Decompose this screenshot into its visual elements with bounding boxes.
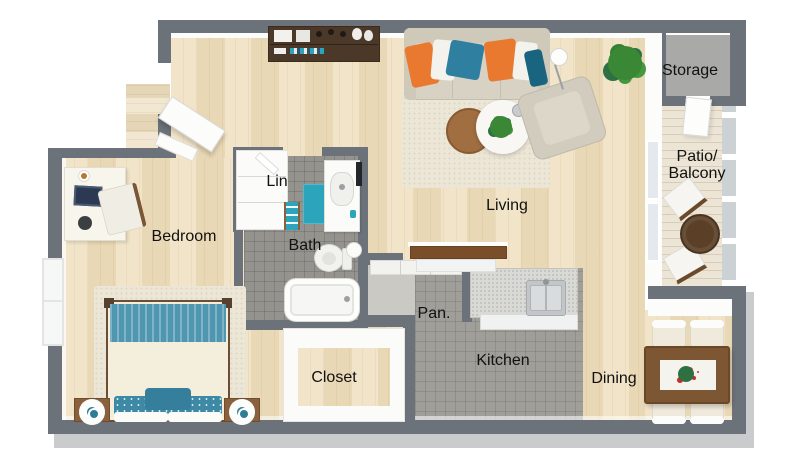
bed-foot-runner bbox=[110, 304, 226, 342]
bed-pillow-white-left bbox=[114, 412, 168, 422]
console-books-2 bbox=[296, 30, 310, 42]
console-decor-knob-2 bbox=[328, 29, 334, 35]
dining-top-inner-face bbox=[648, 299, 732, 316]
label-bath: Bath bbox=[275, 237, 335, 254]
bar-counter-top bbox=[410, 246, 507, 259]
bath-pedestal bbox=[346, 242, 362, 258]
console-media-items-2 bbox=[274, 48, 286, 54]
dining-chair-top-left-back bbox=[652, 320, 686, 328]
bedroom-top-wall bbox=[48, 148, 176, 158]
dining-chair-bottom-left-back bbox=[652, 416, 686, 424]
sofa-back bbox=[404, 28, 550, 43]
right-wall-base bbox=[746, 292, 754, 434]
desk-stool bbox=[78, 216, 92, 230]
dining-chair-top-right-back bbox=[690, 320, 724, 328]
patio-slider-glass-lower bbox=[646, 202, 660, 262]
label-pantry: Pan. bbox=[404, 305, 464, 322]
label-dining: Dining bbox=[574, 370, 654, 387]
bottom-wall bbox=[48, 420, 746, 434]
pantry-bottom-wall bbox=[368, 315, 405, 327]
bedroom-window-divider bbox=[42, 300, 64, 302]
kitchen-sink-divider bbox=[545, 285, 547, 311]
pantry-shelf-divider-1 bbox=[400, 260, 401, 275]
console-decor-knob-1 bbox=[316, 31, 322, 37]
bed-pillow-white-right bbox=[168, 412, 222, 422]
storage-door bbox=[682, 97, 712, 138]
console-shelf-line bbox=[270, 44, 378, 45]
kitchen-faucet bbox=[543, 279, 549, 285]
dining-centerpiece-flowers bbox=[678, 366, 694, 382]
storage-right-wall bbox=[730, 20, 746, 106]
label-storage: Storage bbox=[652, 62, 728, 79]
dining-right-wall bbox=[732, 286, 746, 433]
bar-counter-face bbox=[416, 259, 496, 272]
floor-lamp bbox=[550, 48, 568, 66]
lamp-left-center bbox=[88, 408, 100, 420]
bottom-wall-base bbox=[54, 434, 754, 448]
bath-mirror bbox=[356, 162, 362, 186]
label-living: Living bbox=[467, 197, 547, 214]
label-kitchen: Kitchen bbox=[463, 352, 543, 369]
label-linen: Lin bbox=[257, 173, 297, 190]
lamp-right-center bbox=[238, 408, 250, 420]
bed-cushion-teal-center bbox=[145, 388, 191, 410]
living-plant bbox=[608, 46, 642, 80]
sofa-pillow-teal bbox=[445, 39, 485, 80]
entry-wall-upper bbox=[158, 33, 171, 63]
console-media-items bbox=[290, 48, 324, 54]
console-decor-knob-3 bbox=[340, 31, 346, 37]
desk-mug bbox=[81, 173, 87, 179]
console-vase-1 bbox=[352, 28, 362, 40]
patio-table bbox=[680, 214, 720, 254]
coffee-table-plant bbox=[490, 116, 512, 138]
vanity-faucet bbox=[339, 184, 345, 190]
storage-bottom-wall-right bbox=[710, 96, 746, 106]
bathtub-faucet bbox=[344, 296, 350, 302]
label-closet: Closet bbox=[294, 369, 374, 386]
label-patio-balcony: Patio/ Balcony bbox=[657, 148, 737, 182]
console-books-1 bbox=[274, 30, 292, 42]
floor-plan: Storage Patio/ Balcony Living Bedroom Li… bbox=[0, 0, 790, 458]
vanity-cup bbox=[350, 210, 356, 218]
kitchen-cabinet-face bbox=[480, 314, 578, 330]
patio-railing bbox=[722, 106, 736, 286]
dining-chair-bottom-right-back bbox=[690, 416, 724, 424]
linen-shelf-2 bbox=[238, 202, 286, 203]
console-vase-2 bbox=[364, 30, 373, 41]
towel-rack bbox=[284, 202, 300, 230]
bedroom-window bbox=[42, 258, 64, 346]
label-bedroom: Bedroom bbox=[134, 228, 234, 245]
